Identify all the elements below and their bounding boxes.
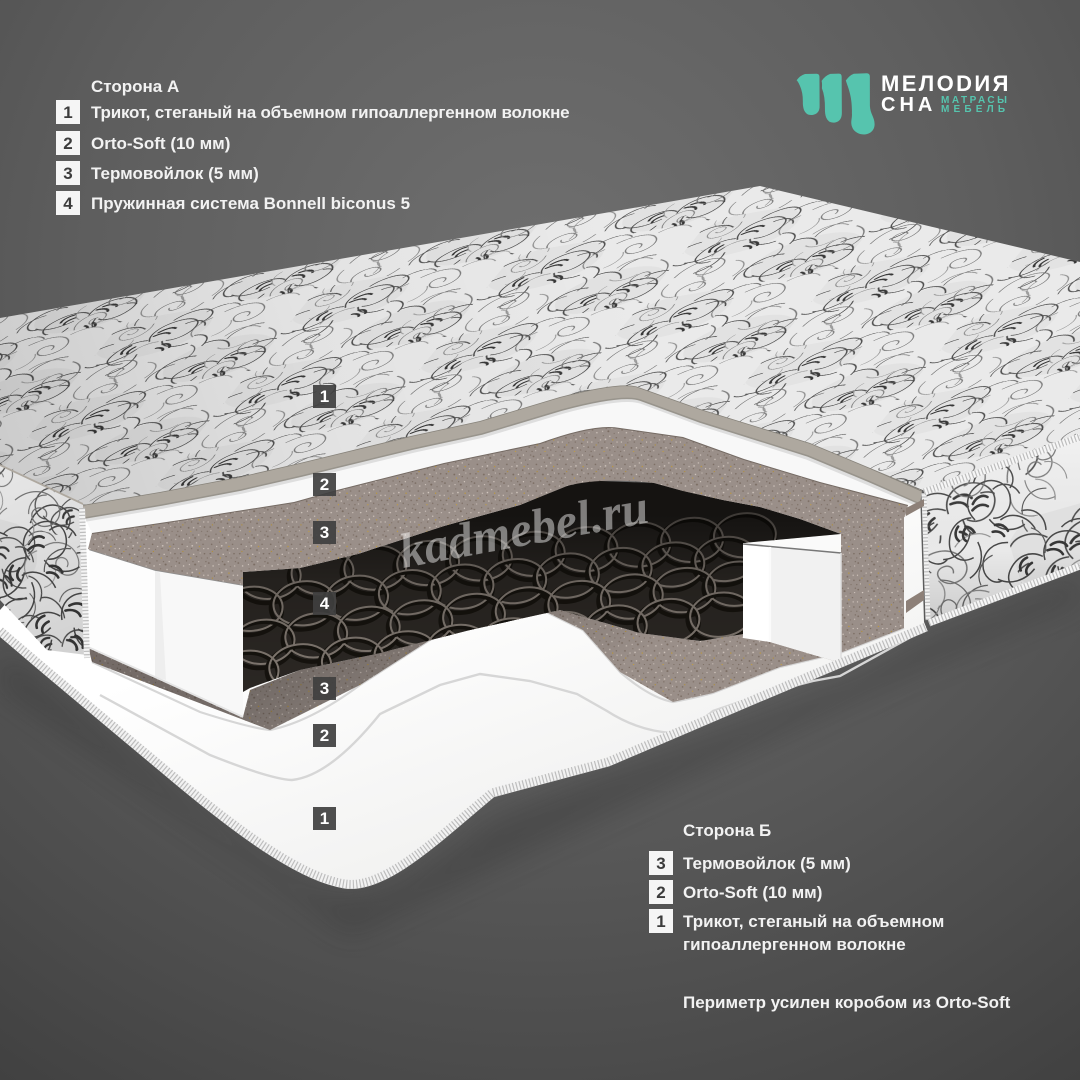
svg-text:Термовойлок (5 мм): Термовойлок (5 мм) bbox=[91, 164, 259, 183]
svg-text:Трикот, стеганый на объемном г: Трикот, стеганый на объемном гипоаллерге… bbox=[91, 103, 569, 122]
svg-text:3: 3 bbox=[63, 164, 72, 183]
svg-text:2: 2 bbox=[656, 883, 665, 902]
svg-text:1: 1 bbox=[320, 387, 329, 406]
svg-text:МЕЛОDИЯ: МЕЛОDИЯ bbox=[881, 71, 1011, 96]
svg-text:3: 3 bbox=[320, 679, 329, 698]
svg-text:Пружинная система Bonnell bico: Пружинная система Bonnell biconus 5 bbox=[91, 194, 410, 213]
svg-text:1: 1 bbox=[656, 912, 665, 931]
svg-text:Orto-Soft (10 мм): Orto-Soft (10 мм) bbox=[91, 134, 230, 153]
svg-text:3: 3 bbox=[320, 523, 329, 542]
svg-text:1: 1 bbox=[63, 103, 72, 122]
svg-text:МЕБЕЛЬ: МЕБЕЛЬ bbox=[941, 104, 1009, 115]
svg-text:Сторона А: Сторона А bbox=[91, 77, 179, 96]
svg-text:Orto-Soft (10 мм): Orto-Soft (10 мм) bbox=[683, 883, 822, 902]
svg-text:гипоаллергенном волокне: гипоаллергенном волокне bbox=[683, 935, 906, 954]
svg-text:СНА: СНА bbox=[881, 94, 936, 116]
svg-text:4: 4 bbox=[320, 594, 330, 613]
svg-text:2: 2 bbox=[320, 475, 329, 494]
svg-text:4: 4 bbox=[63, 194, 73, 213]
svg-text:1: 1 bbox=[320, 809, 329, 828]
svg-text:Термовойлок (5 мм): Термовойлок (5 мм) bbox=[683, 854, 851, 873]
svg-text:2: 2 bbox=[63, 134, 72, 153]
svg-text:2: 2 bbox=[320, 726, 329, 745]
svg-text:Периметр усилен коробом из Ort: Периметр усилен коробом из Orto-Soft bbox=[683, 993, 1011, 1012]
svg-text:3: 3 bbox=[656, 854, 665, 873]
svg-text:Сторона Б: Сторона Б bbox=[683, 821, 771, 840]
svg-text:Трикот, стеганый на объемном: Трикот, стеганый на объемном bbox=[683, 912, 944, 931]
